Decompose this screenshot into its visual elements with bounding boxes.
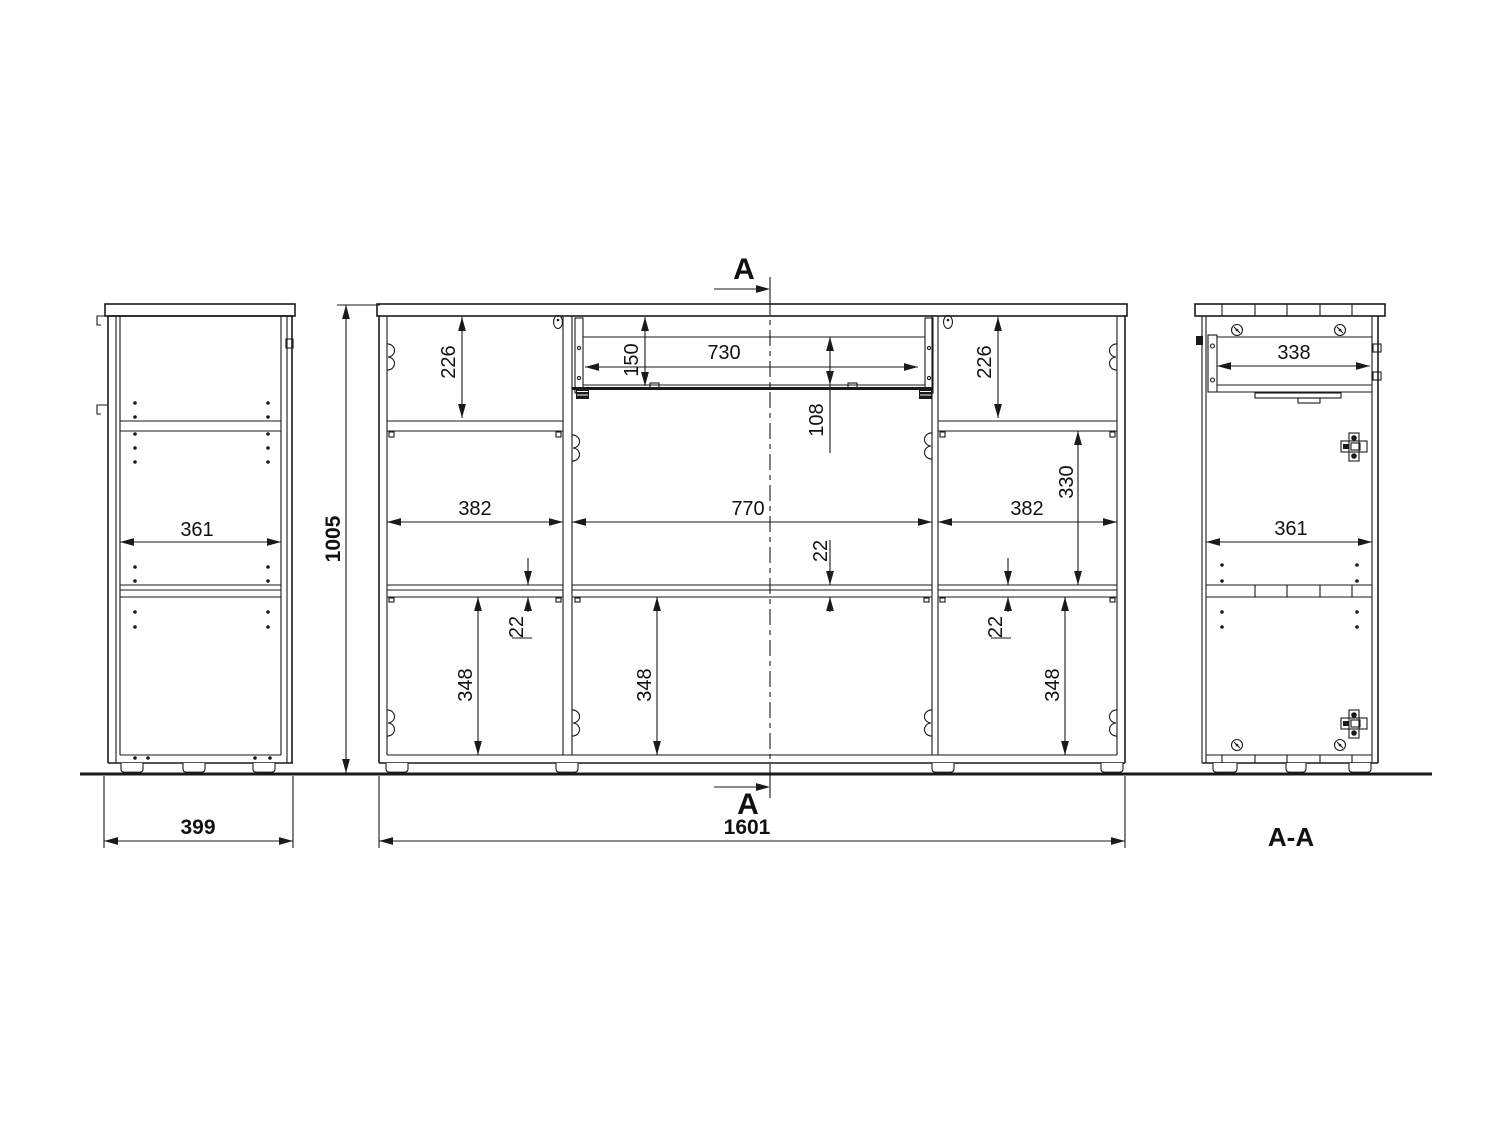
slide-bracket-right [919,388,932,399]
dim-right-gap: 330 [1056,465,1078,498]
dim-door-left: 348 [455,668,477,701]
section-pin-holes [1220,563,1359,629]
dim-center-width: 770 [731,498,764,520]
drawer-slide-rail [1255,393,1341,398]
dim-shelf-left: 22 [506,616,528,638]
magnetic-catches [554,316,953,329]
dim-shelf-right: 22 [985,616,1007,638]
dim-door-center: 348 [634,668,656,701]
section-marker-bottom: A [737,788,759,821]
dim-side-inner-width: 361 [180,519,213,541]
side-feet [121,763,275,772]
back-panel-clip [1196,336,1203,345]
dim-section-inner-width: 361 [1274,518,1307,540]
section-cut-line: A A [714,253,770,821]
dim-drawer-width: 730 [707,342,740,364]
hinge-plate-bottom [1341,710,1367,738]
dim-side-depth: 399 [180,816,215,839]
section-feet [1213,763,1371,772]
section-title: A-A [1268,822,1314,852]
section-marker-top: A [733,253,755,286]
slide-bracket-left [576,388,589,399]
hinge-plate-top [1341,433,1367,461]
dim-top-left: 226 [438,345,460,378]
dim-section-drawer-width: 338 [1277,342,1310,364]
section-view: 338 361 A-A [1195,304,1385,852]
technical-drawing-page: 361 399 [0,0,1500,1124]
dim-left-width: 382 [458,498,491,520]
dim-drawer-front: 150 [621,343,643,376]
dim-height: 1005 [322,515,345,562]
side-top-panel [105,304,295,316]
drawer-slide-left [575,318,583,393]
dim-top-right: 226 [974,345,996,378]
cam-screws-top [1232,325,1346,336]
front-feet [386,763,1123,772]
shelf-pin-holes [133,401,272,760]
front-top-panel [377,304,1127,316]
dim-right-width: 382 [1010,498,1043,520]
hanger-hook-top [97,316,108,325]
front-view: 1005 226 226 150 730 108 382 770 [322,253,1127,848]
dim-drawer-depth: 108 [806,403,828,436]
dim-door-right: 348 [1042,668,1064,701]
dim-shelf-center: 22 [810,540,832,562]
cam-screws-bottom [1232,740,1346,751]
furniture-dimension-drawing: 361 399 [0,0,1500,1124]
section-top-panel [1195,304,1385,316]
side-view: 361 399 [97,304,295,848]
hinge-cups [387,344,1117,736]
hanger-hook-bottom [97,405,108,414]
